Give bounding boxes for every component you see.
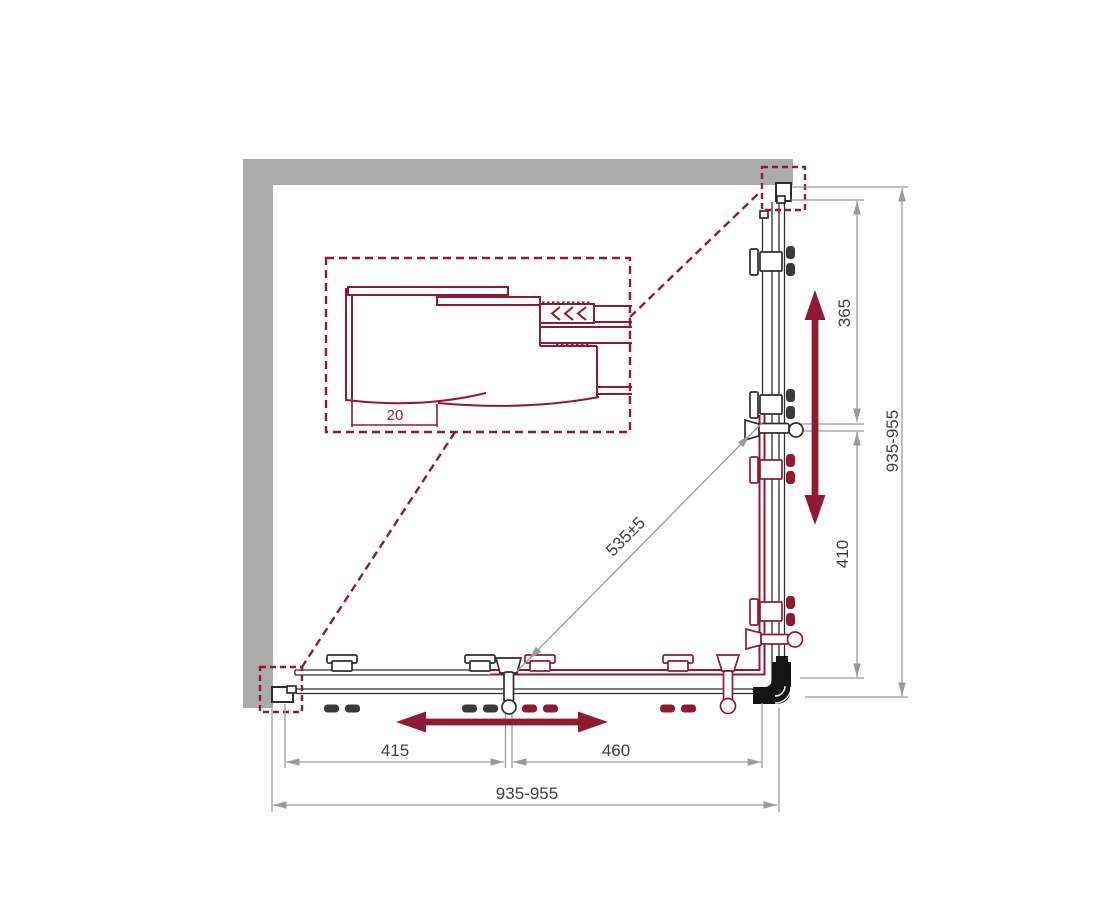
dimension-labels: 415 460 935-955 365 410 935-955 535±5 — [381, 299, 902, 803]
dimension-line-diagonal — [529, 435, 750, 659]
dimension-label-total-width: 935-955 — [496, 784, 558, 803]
handle-knob-bottom-fixed — [496, 658, 521, 702]
dimension-label-total-height: 935-955 — [883, 410, 902, 472]
handle-knob-end-bottom — [502, 700, 516, 714]
callout-leader-line-bottom — [302, 432, 455, 667]
slide-direction-arrow-vertical — [805, 290, 826, 525]
shower-enclosure-drawing: 20 415 460 935-955 365 4 — [0, 0, 1109, 900]
detail-inset-view: 20 — [346, 287, 632, 427]
detail-callout — [260, 167, 805, 712]
dimension-label-upper-segment: 365 — [835, 299, 854, 327]
wall-left — [243, 159, 273, 708]
wall-bracket-top-right — [760, 183, 791, 218]
glass-swing-arc — [346, 393, 486, 403]
room-walls — [243, 159, 793, 708]
dimension-label-profile-inset: 20 — [387, 407, 404, 424]
wall-bracket-bottom-left — [272, 686, 296, 702]
handle-knob-end-right — [789, 423, 803, 437]
dimension-label-lower-segment: 410 — [833, 540, 852, 568]
right-door-assembly — [490, 202, 785, 690]
adjustment-chevrons-icon — [540, 303, 594, 345]
roller-bracket-bottom-fixed-1 — [324, 655, 360, 713]
handle-knob-bottom-door — [717, 655, 739, 714]
dimension-label-diagonal-entry: 535±5 — [602, 513, 649, 560]
dimension-label-left-segment: 415 — [381, 741, 409, 760]
wall-top — [243, 159, 793, 185]
dimension-label-door-segment: 460 — [602, 741, 630, 760]
roller-bracket-bottom-fixed-2 — [462, 655, 498, 713]
technical-drawing-page: 20 415 460 935-955 365 4 — [0, 0, 1109, 900]
roller-bracket-bottom-door-2 — [660, 655, 696, 713]
callout-leader-line-top — [630, 192, 760, 317]
roller-bracket-bottom-door-1 — [522, 655, 558, 713]
handle-knob-right-door — [746, 629, 803, 649]
handle-knob-right-fixed — [745, 420, 789, 440]
slide-direction-arrow-horizontal — [396, 712, 608, 733]
